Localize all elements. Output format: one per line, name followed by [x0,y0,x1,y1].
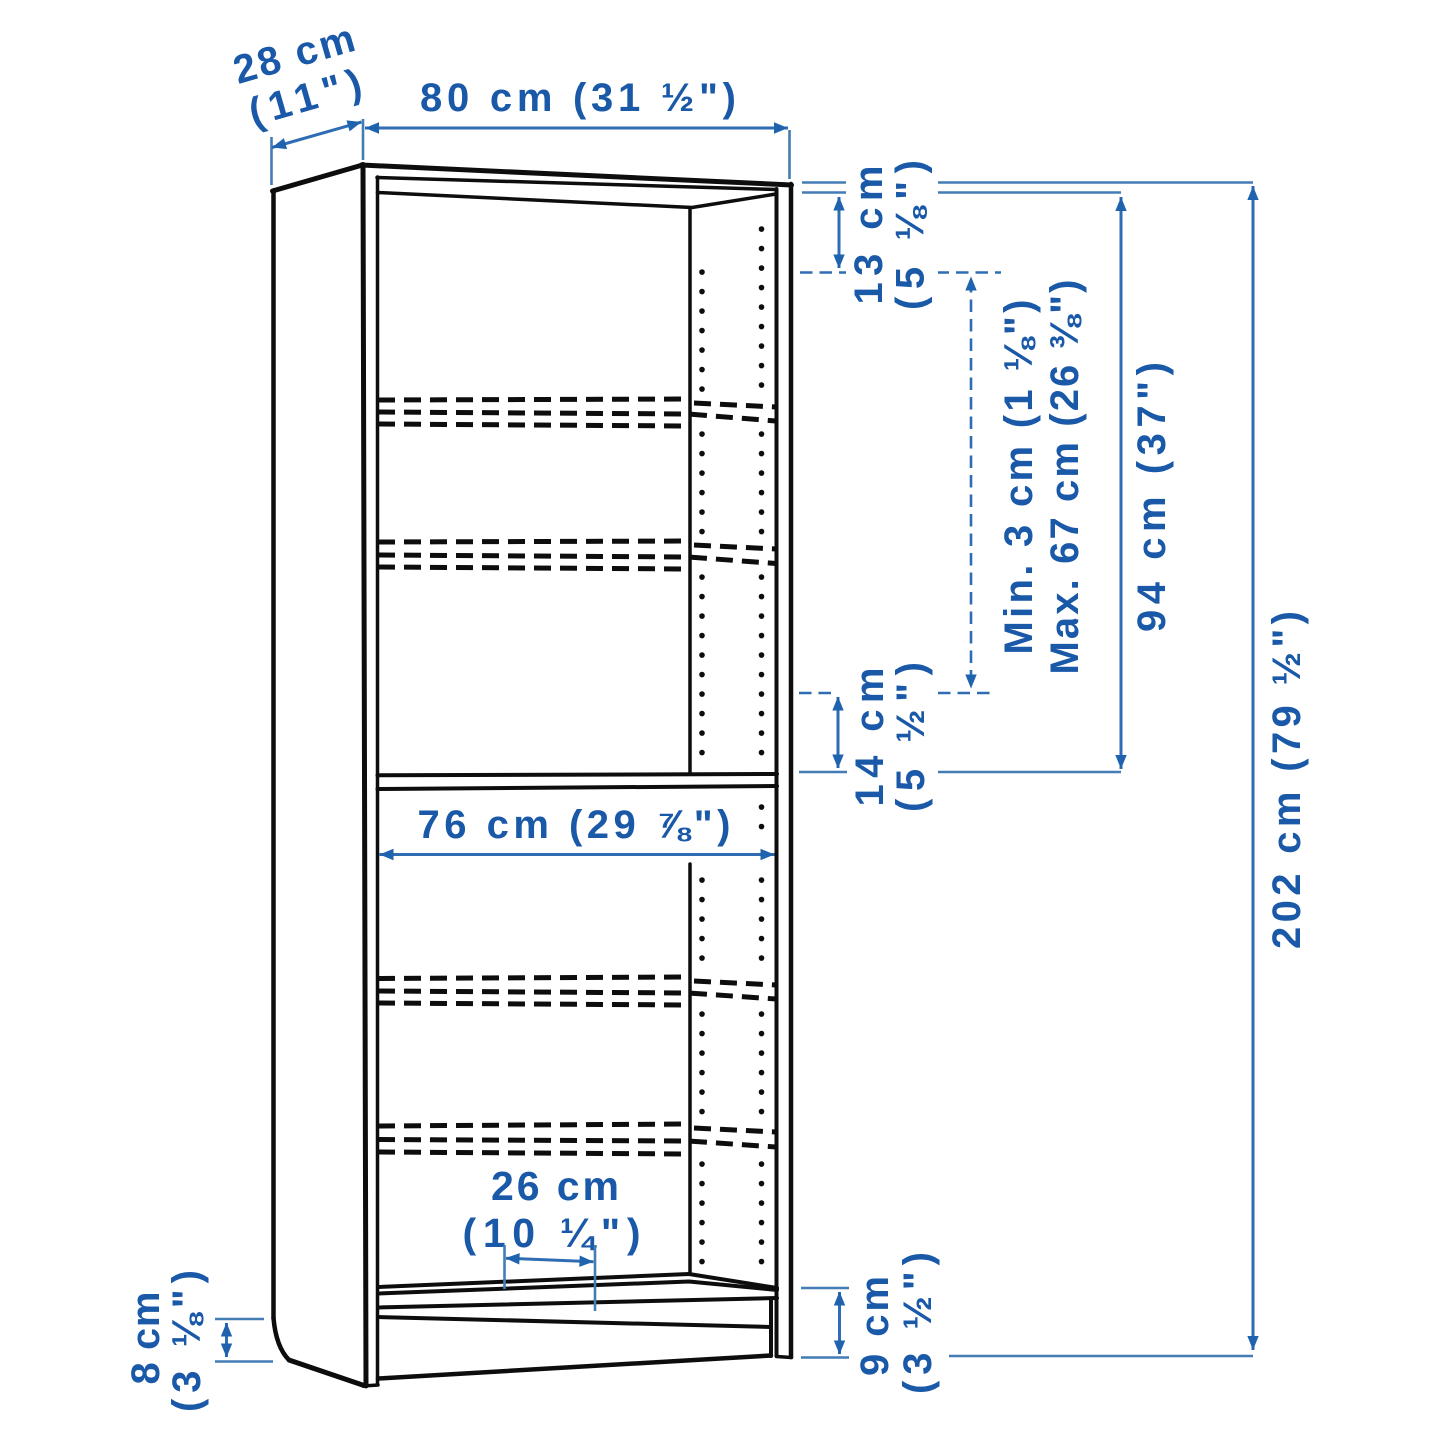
svg-text:Max. 67 cm (26 ⅜"): Max. 67 cm (26 ⅜") [1043,280,1087,675]
svg-text:(10 ¼"): (10 ¼") [463,1210,641,1256]
svg-text:(5 ½"): (5 ½") [889,662,933,812]
svg-text:(3 ⅛"): (3 ⅛") [165,1270,209,1412]
svg-text:8 cm: 8 cm [124,1292,168,1385]
svg-text:Min. 3 cm (1 ⅛"): Min. 3 cm (1 ⅛") [997,300,1041,655]
svg-text:(3 ½"): (3 ½") [896,1252,940,1394]
svg-text:76 cm (29 ⅞"): 76 cm (29 ⅞") [418,803,731,847]
svg-text:(5 ⅛"): (5 ⅛") [889,160,933,310]
svg-text:9 cm: 9 cm [853,1276,897,1376]
svg-text:80 cm (31 ½"): 80 cm (31 ½") [420,76,736,120]
